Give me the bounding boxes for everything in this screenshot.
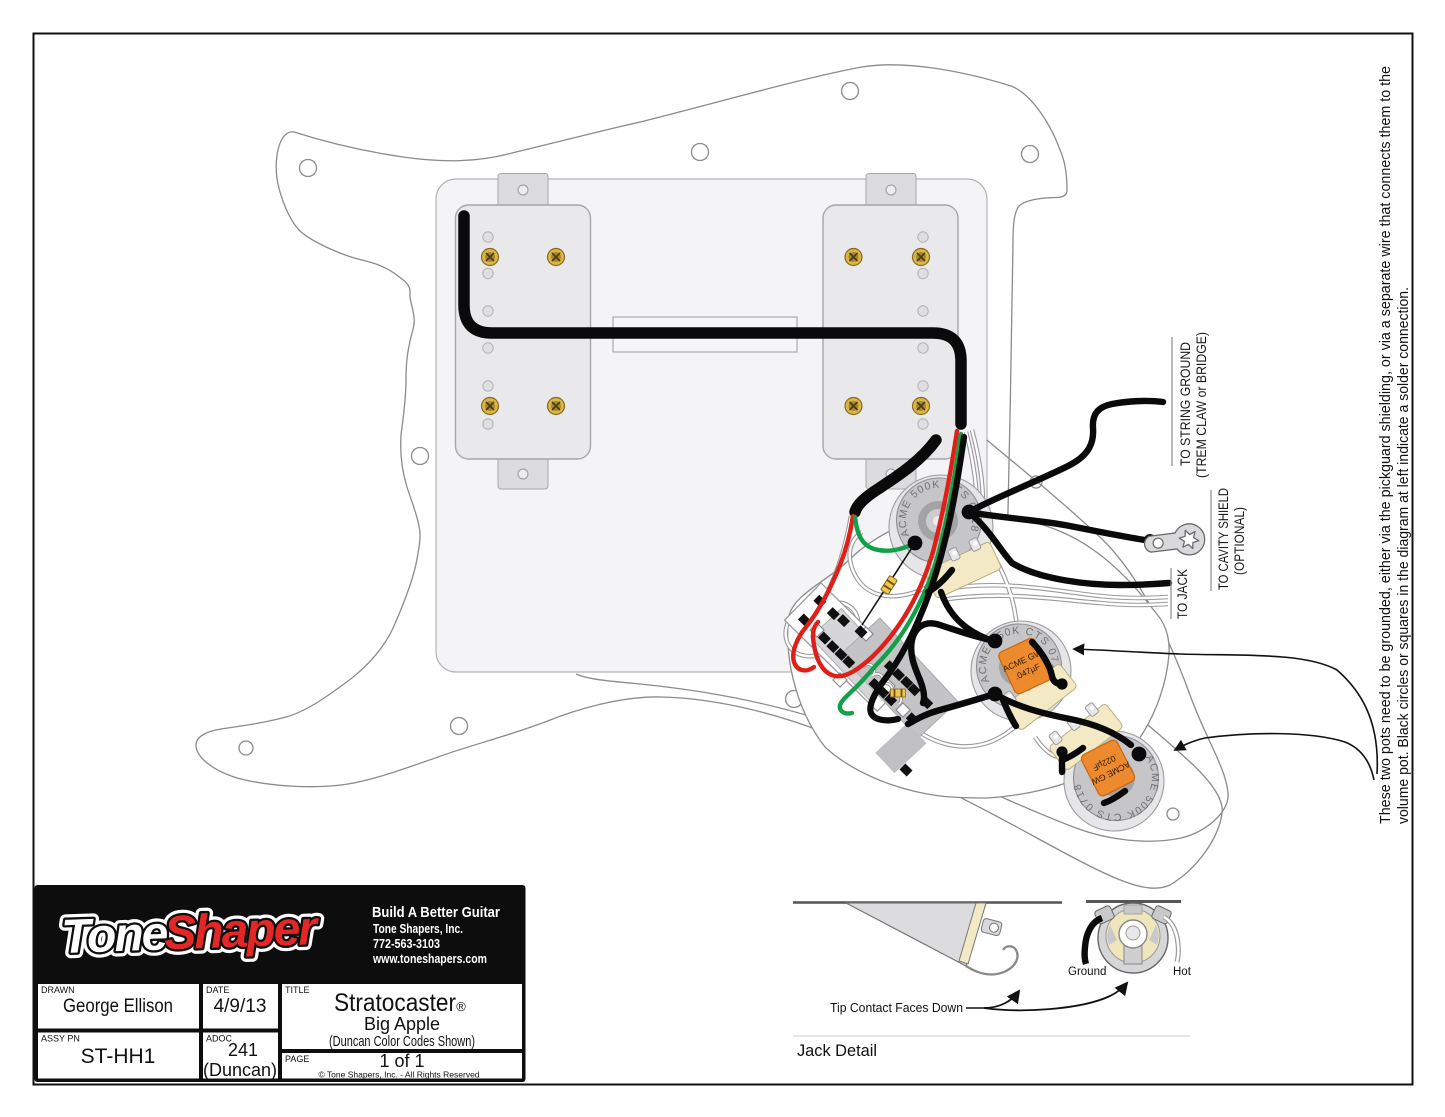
svg-text:1 of 1: 1 of 1 [379, 1051, 424, 1071]
svg-text:George Ellison: George Ellison [63, 996, 173, 1017]
svg-text:TO JACK: TO JACK [1175, 569, 1190, 619]
svg-text:Jack Detail: Jack Detail [797, 1041, 877, 1060]
svg-text:DRAWN: DRAWN [41, 985, 75, 995]
svg-text:Stratocaster: Stratocaster [334, 989, 456, 1017]
svg-text:TO CAVITY SHIELD: TO CAVITY SHIELD [1216, 488, 1231, 590]
svg-text:241: 241 [228, 1040, 258, 1060]
svg-text:ToneShaper: ToneShaper [61, 902, 321, 964]
svg-text:772-563-3103: 772-563-3103 [373, 937, 440, 951]
svg-text:volume pot. Black circles or s: volume pot. Black circles or squares in … [1396, 287, 1412, 824]
svg-text:4/9/13: 4/9/13 [214, 996, 267, 1017]
svg-text:(TREM CLAW or BRIDGE): (TREM CLAW or BRIDGE) [1194, 332, 1209, 478]
svg-text:Big Apple: Big Apple [364, 1014, 440, 1034]
svg-text:(Duncan Color Codes Shown): (Duncan Color Codes Shown) [329, 1034, 475, 1050]
svg-text:Build A Better Guitar: Build A Better Guitar [372, 904, 500, 921]
svg-text:PAGE: PAGE [285, 1054, 309, 1064]
svg-text:(OPTIONAL): (OPTIONAL) [1232, 507, 1247, 575]
svg-text:DATE: DATE [206, 985, 229, 995]
svg-text:Ground: Ground [1068, 966, 1106, 978]
svg-text:www.toneshapers.com: www.toneshapers.com [372, 952, 487, 966]
svg-text:Hot: Hot [1173, 966, 1192, 978]
svg-text:ASSY PN: ASSY PN [41, 1034, 80, 1044]
svg-text:TITLE: TITLE [285, 985, 310, 995]
svg-text:(Duncan): (Duncan) [203, 1060, 277, 1080]
svg-text:© Tone Shapers, Inc. - All Rig: © Tone Shapers, Inc. - All Rights Reserv… [318, 1070, 479, 1080]
svg-text:ST-HH1: ST-HH1 [81, 1045, 156, 1068]
svg-text:These two pots need to be grou: These two pots need to be grounded, eith… [1378, 66, 1394, 824]
svg-text:Tip Contact Faces Down: Tip Contact Faces Down [830, 1001, 963, 1015]
svg-text:TO STRING GROUND: TO STRING GROUND [1178, 342, 1193, 466]
svg-text:Tone Shapers, Inc.: Tone Shapers, Inc. [373, 922, 463, 936]
svg-text:®: ® [456, 999, 466, 1014]
